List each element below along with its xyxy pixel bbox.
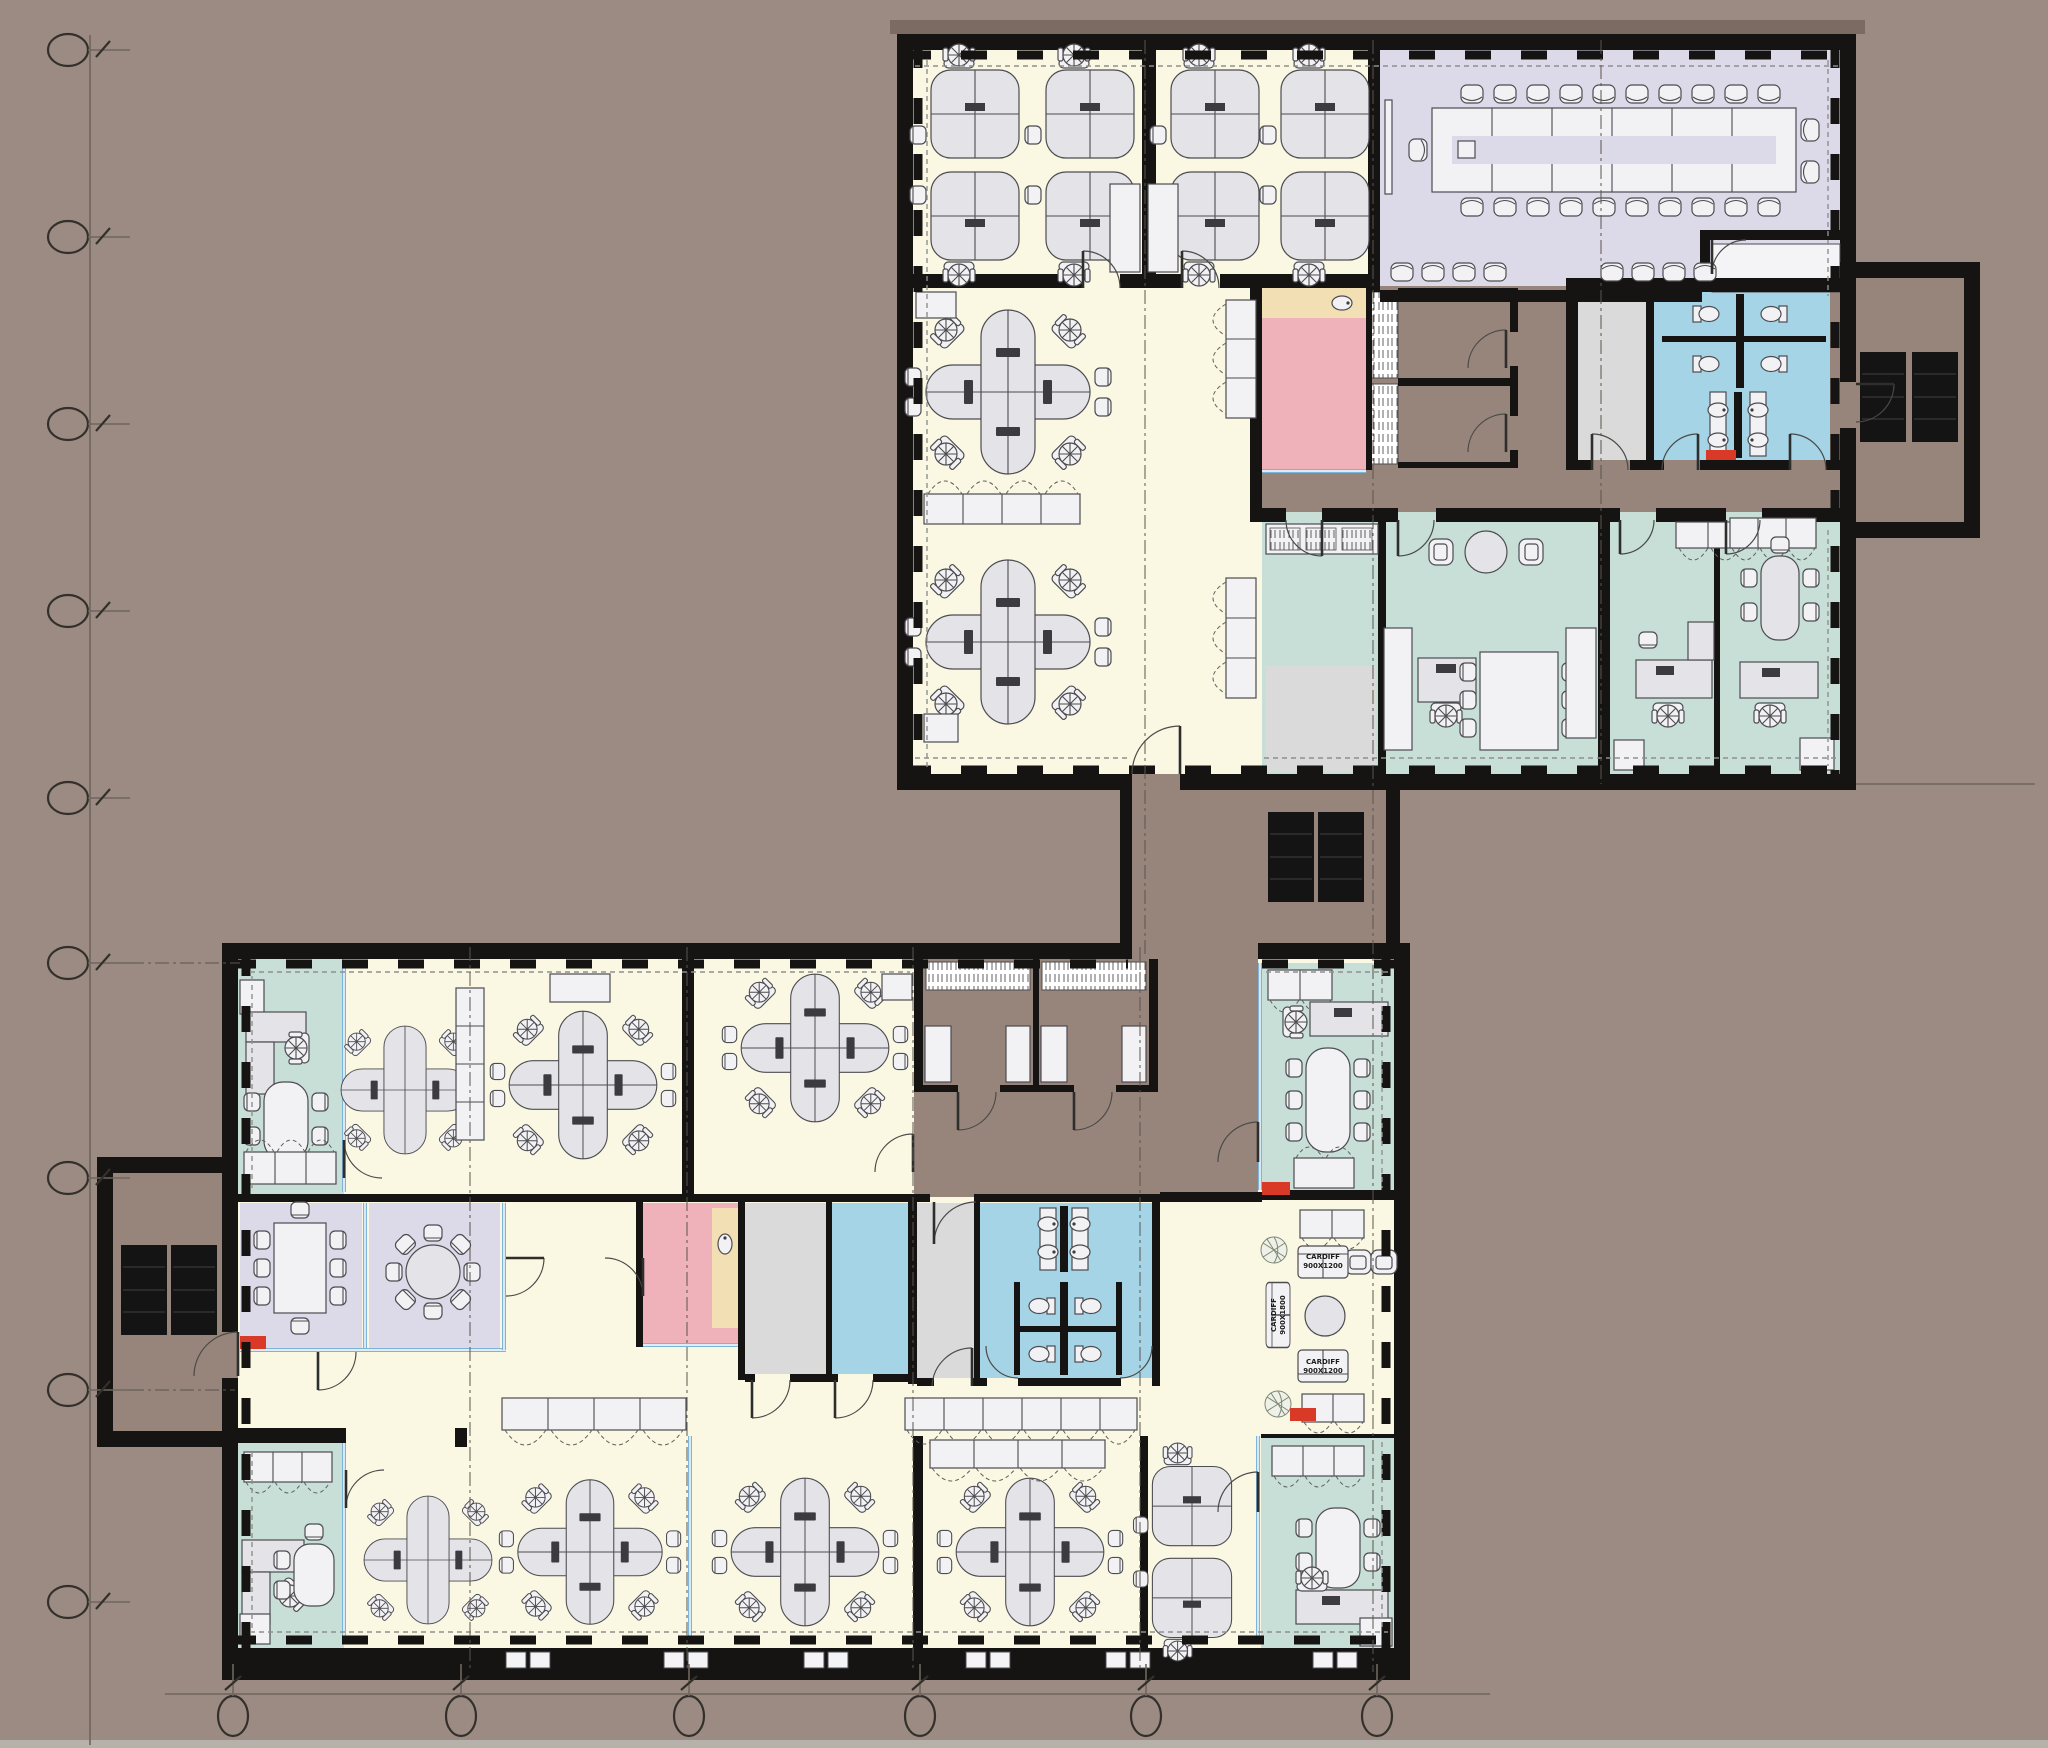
- table-projector: [1458, 141, 1475, 158]
- toilet-icon: [1761, 306, 1787, 322]
- toilet-icon: [1029, 1346, 1055, 1362]
- entry-mat: [1290, 1408, 1316, 1421]
- elevator-shaft: [121, 1245, 167, 1335]
- shelf: [1122, 1026, 1146, 1082]
- meeting-table: [264, 1082, 308, 1160]
- armchair: [1519, 539, 1543, 565]
- workstation-cluster: [905, 560, 1111, 724]
- bottom-edge-strip: [0, 1740, 2048, 1748]
- shelf: [1006, 1026, 1030, 1082]
- svg-text:CARDIFF: CARDIFF: [1270, 1298, 1278, 1332]
- toilet-icon: [1693, 306, 1719, 322]
- sink-icon: [1038, 1217, 1058, 1231]
- coffee-table: [1465, 531, 1507, 573]
- cabinet-row: [1294, 1158, 1354, 1188]
- kitchen-counter: [1384, 628, 1412, 750]
- sofa-label: 900X1200: [1303, 1262, 1343, 1270]
- elevator-shaft: [1912, 352, 1958, 442]
- desk: [1636, 660, 1712, 698]
- changing-room: [745, 1203, 826, 1374]
- tall-cabinet: [1566, 628, 1596, 738]
- desk: [1310, 1002, 1388, 1036]
- sink-icon: [1038, 1245, 1058, 1259]
- tall-cabinet: [1226, 578, 1256, 698]
- shelf: [925, 1026, 951, 1082]
- sink-icon: [1070, 1217, 1090, 1231]
- wardrobe: [550, 974, 610, 1002]
- desk: [1740, 662, 1818, 698]
- dining-table: [1480, 652, 1558, 750]
- toilet-icon: [1693, 356, 1719, 372]
- vestibule-a-floor: [1578, 292, 1646, 460]
- shelf: [1041, 1026, 1067, 1082]
- wing-a: [897, 34, 1856, 790]
- wc-b-vestibule: [917, 1203, 974, 1378]
- wardrobe: [924, 714, 958, 742]
- svg-text:CARDIFF: CARDIFF: [1306, 1358, 1340, 1366]
- wardrobe-row: [244, 1452, 332, 1482]
- pink-room-a-floor: [1262, 318, 1366, 470]
- elevator-core-west: [97, 1157, 238, 1447]
- sink-icon: [1748, 433, 1768, 447]
- elevator-shaft: [1268, 812, 1314, 902]
- plant-icon: [1265, 1391, 1291, 1417]
- workstation-cluster: [364, 1496, 492, 1624]
- elevator-core-east: [1840, 262, 1980, 538]
- toilet-icon: [1075, 1298, 1101, 1314]
- closet: [1110, 184, 1140, 272]
- workstation-cluster: [490, 1011, 675, 1159]
- sofa: [1298, 1350, 1348, 1382]
- sink-icon: [1708, 433, 1728, 447]
- shower-room: [829, 1203, 908, 1374]
- toilet-icon: [1761, 356, 1787, 372]
- cabinet-row: [1272, 1446, 1364, 1476]
- sink-icon: [1332, 296, 1352, 310]
- coffee-table: [1305, 1296, 1345, 1336]
- sink-icon: [718, 1234, 732, 1254]
- wing-b: CARDIFF 900X1200 CARDIFF 900X1800 CARDIF…: [222, 943, 1410, 1680]
- storage-zone: [1266, 666, 1376, 772]
- armchair: [1345, 1250, 1371, 1274]
- north-shadow-strip: [890, 20, 1865, 34]
- floor-plan-drawing: CARDIFF 900X1200 CARDIFF 900X1800 CARDIF…: [0, 0, 2048, 1748]
- round-table-8: [386, 1225, 480, 1319]
- elevator-shaft: [171, 1245, 217, 1335]
- wing-b-corridor: [914, 959, 1258, 1197]
- plant-icon: [1261, 1237, 1287, 1263]
- elevator-shaft: [1860, 352, 1906, 442]
- floor-plan-canvas: CARDIFF 900X1200 CARDIFF 900X1800 CARDIF…: [0, 0, 2048, 1748]
- wardrobe-row: [905, 1398, 1137, 1430]
- elevator-shaft: [1318, 812, 1364, 902]
- sofa-label: CARDIFF: [1306, 1253, 1340, 1261]
- toilet-icon: [1075, 1346, 1101, 1362]
- workstation-cluster: [712, 1478, 897, 1626]
- entry-mat: [1262, 1182, 1290, 1195]
- workstation-cluster: [499, 1480, 680, 1624]
- projection-screen: [1385, 100, 1392, 194]
- closet: [1148, 184, 1178, 272]
- svg-text:900X1200: 900X1200: [1303, 1367, 1343, 1375]
- workstation-cluster: [341, 1026, 469, 1154]
- armchair: [1429, 539, 1453, 565]
- meeting-table: [294, 1544, 334, 1606]
- meeting-table: [1306, 1048, 1350, 1152]
- toilet-icon: [1029, 1298, 1055, 1314]
- sink-icon: [1748, 403, 1768, 417]
- sink-icon: [1708, 403, 1728, 417]
- sink-icon: [1070, 1245, 1090, 1259]
- pink-room-b-counter: [712, 1208, 738, 1328]
- workstation-cluster: [722, 974, 907, 1122]
- wardrobe: [882, 974, 912, 1000]
- tall-cabinet: [1226, 300, 1256, 418]
- workstation-cluster: [937, 1478, 1122, 1626]
- cabinet-row: [244, 1152, 336, 1184]
- svg-text:900X1800: 900X1800: [1279, 1295, 1287, 1335]
- wardrobe: [916, 292, 956, 318]
- workstation-cluster: [905, 310, 1111, 474]
- wardrobe: [1800, 738, 1834, 770]
